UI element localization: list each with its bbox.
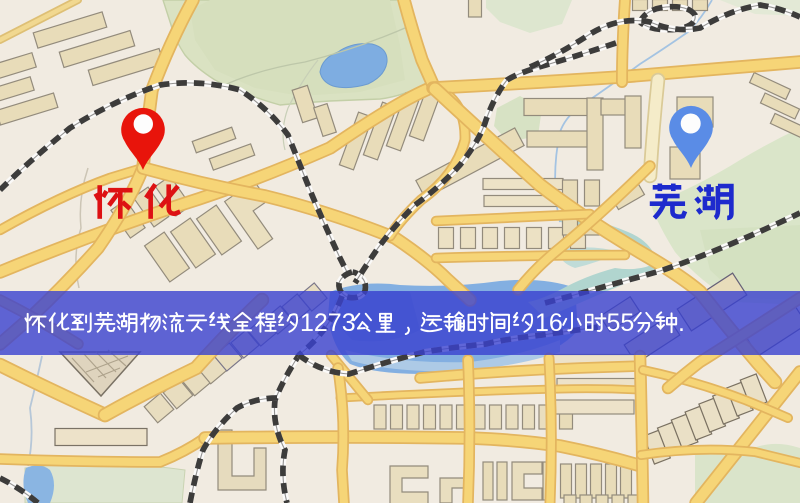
svg-text:.: . <box>678 309 685 337</box>
svg-text:16: 16 <box>535 309 563 337</box>
svg-text:1273: 1273 <box>300 309 356 337</box>
svg-text:55: 55 <box>607 309 635 337</box>
